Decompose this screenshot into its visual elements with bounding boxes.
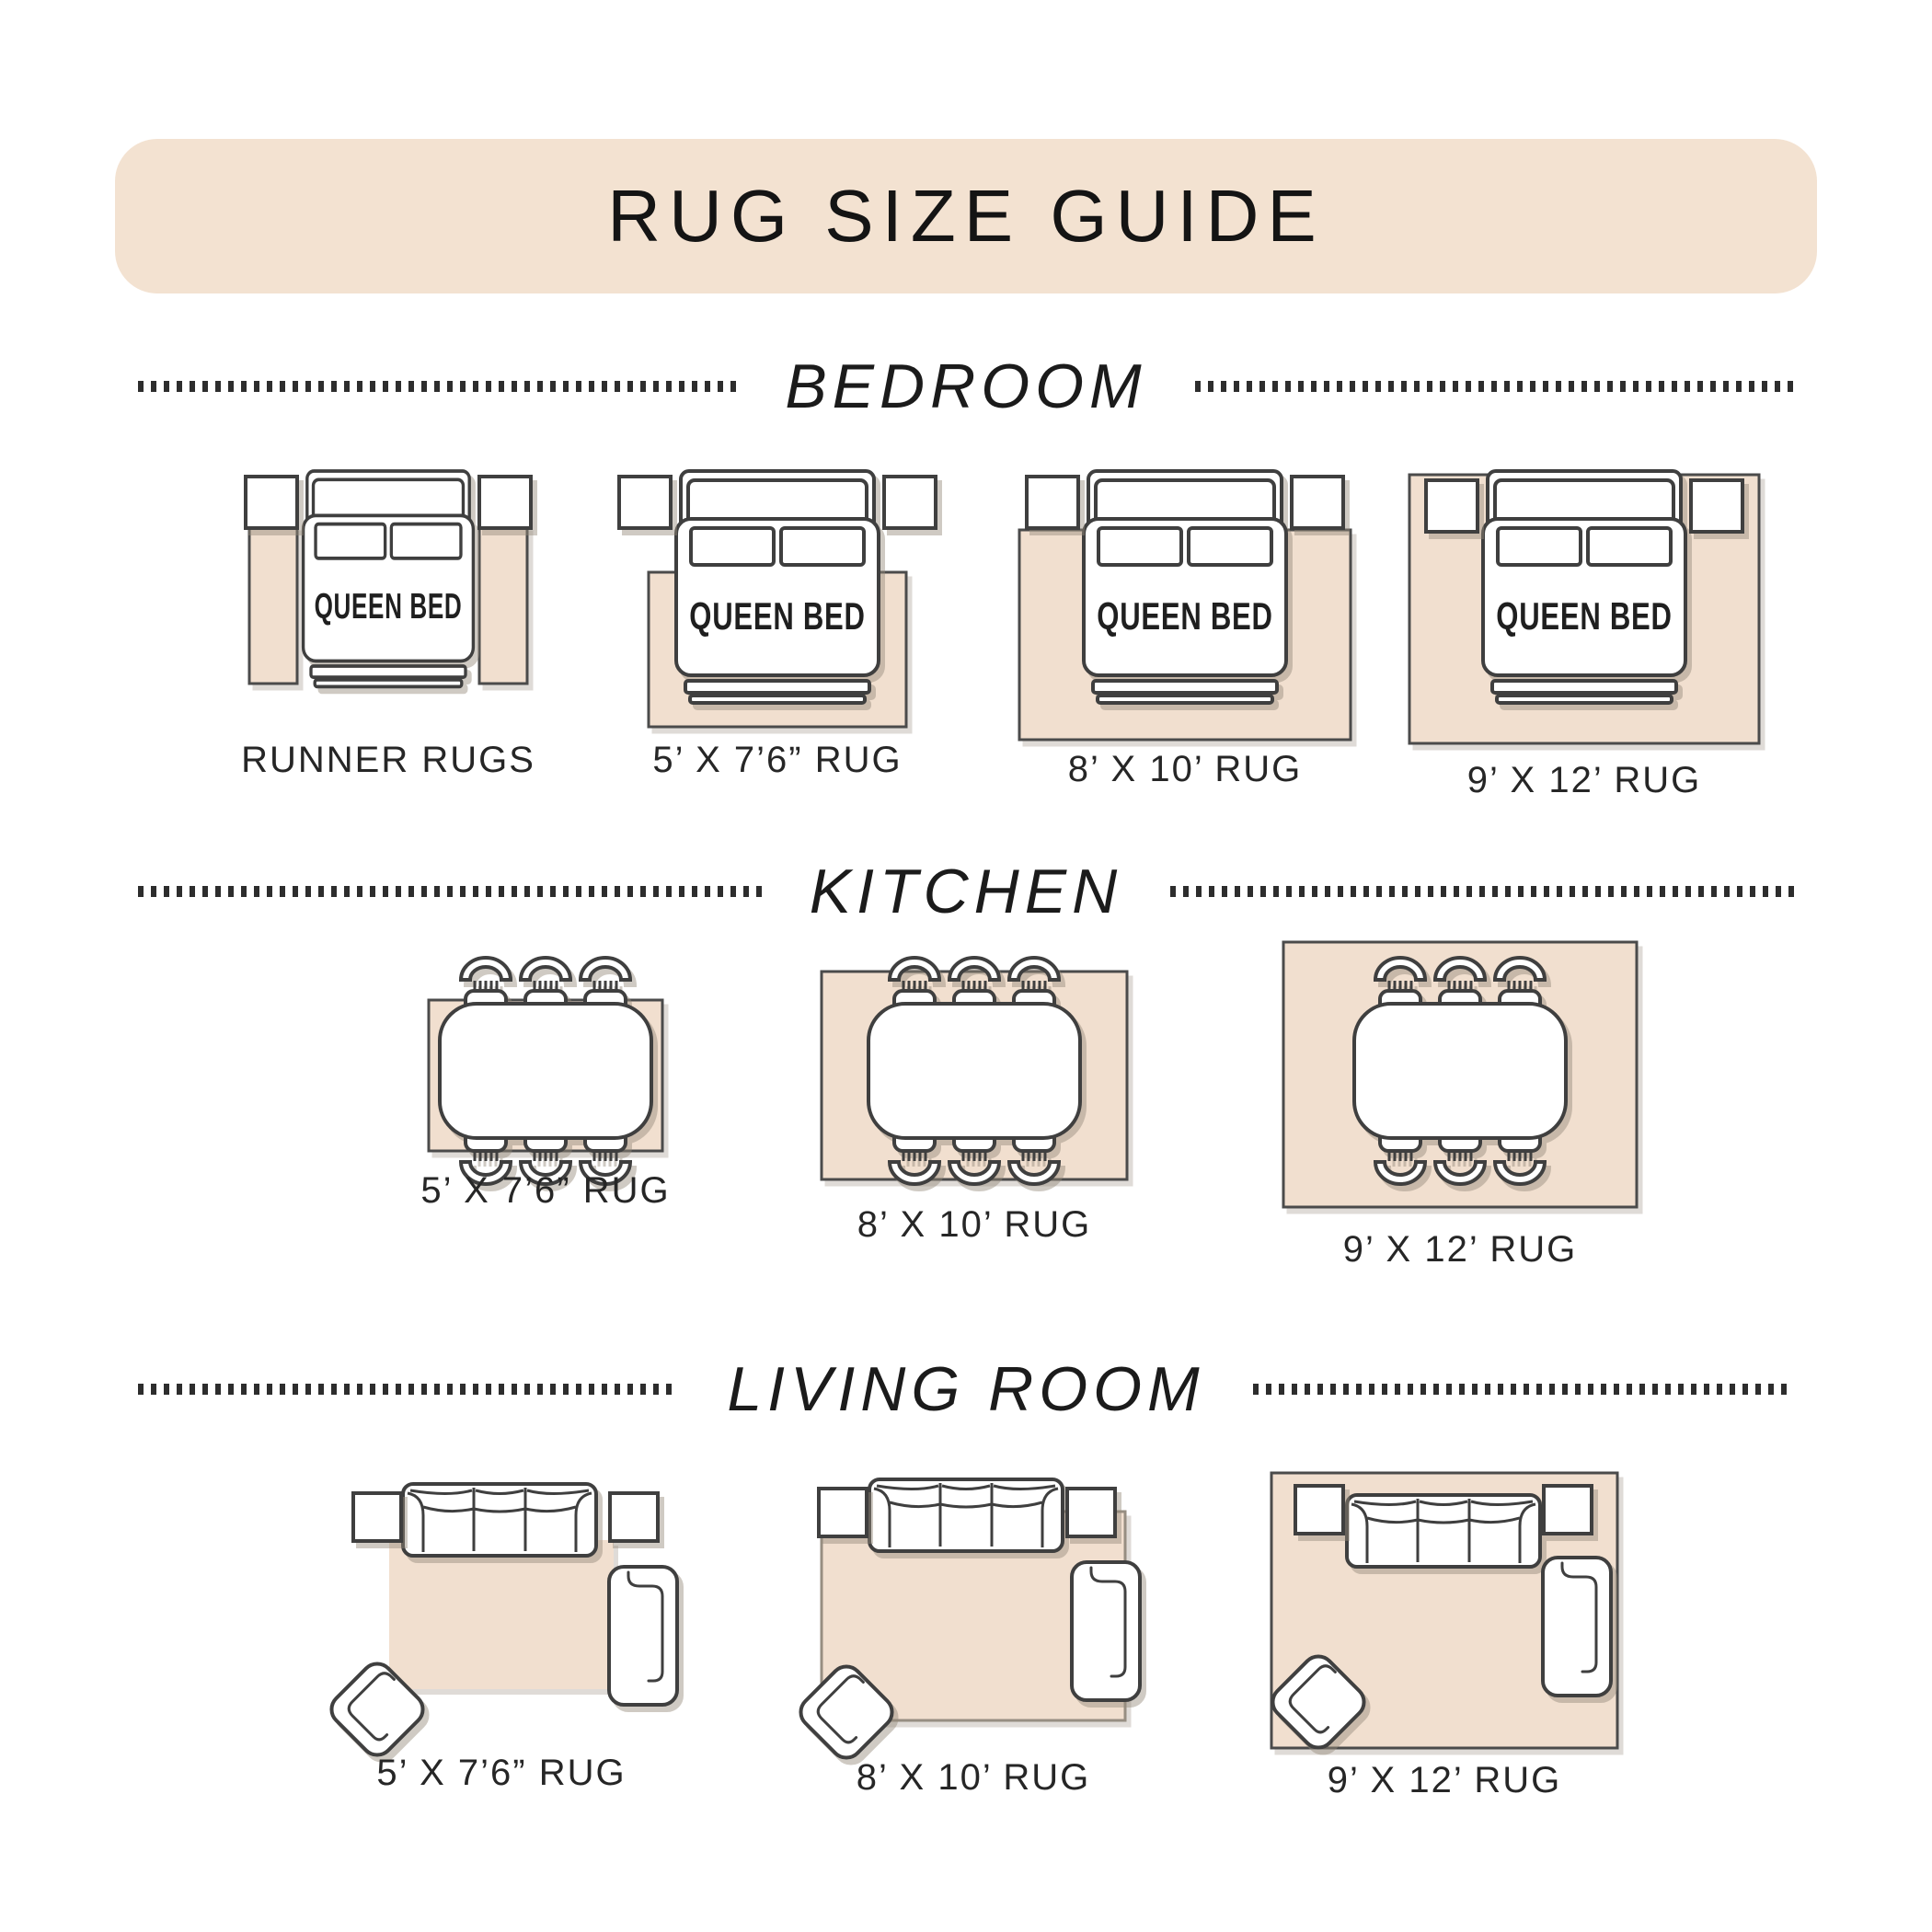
nightstand — [1426, 480, 1478, 532]
rug-size-label: 9’ X 12’ RUG — [1467, 760, 1701, 800]
dotted-line — [138, 381, 737, 392]
title-banner: RUG SIZE GUIDE — [115, 139, 1817, 293]
bed — [1483, 471, 1685, 703]
chaise — [1072, 1562, 1140, 1700]
bedroom-8x10-rug-diagram: 8’ X 10’ RUG — [983, 464, 1387, 804]
rug-size-label: 8’ X 10’ RUG — [857, 1204, 1091, 1245]
bed — [304, 471, 474, 686]
kitchen-9x12-rug-diagram: 9’ X 12’ RUG — [1258, 933, 1662, 1282]
bedroom-section-header: BEDROOM — [138, 351, 1794, 422]
living-room-section-header: LIVING ROOM — [138, 1353, 1794, 1425]
kitchen-section-header: KITCHEN — [138, 856, 1794, 927]
kitchen-section-title: KITCHEN — [762, 856, 1170, 927]
dotted-line — [138, 1384, 679, 1395]
sofa — [1347, 1495, 1540, 1567]
side-table — [353, 1493, 401, 1541]
living-room-diagrams-row: 5’ X 7’6” RUG 8’ X 10’ RUG 9’ X 12’ RUG — [0, 1463, 1932, 1812]
chaise — [1543, 1558, 1611, 1696]
rug-size-label: RUNNER RUGS — [241, 740, 535, 780]
side-table — [1067, 1489, 1115, 1536]
dining-set — [1354, 958, 1566, 1184]
dotted-line — [138, 886, 762, 897]
bedroom-runner-rugs-diagram: RUNNER RUGS — [186, 464, 591, 804]
rug-size-guide-infographic: RUG SIZE GUIDE BEDROOM RUNNER RUGS 5’ X … — [0, 139, 1932, 1812]
bed — [1084, 471, 1286, 703]
rug-size-label: 9’ X 12’ RUG — [1343, 1229, 1577, 1270]
rug — [389, 1540, 614, 1689]
rug-size-label: 5’ X 7’6” RUG — [652, 740, 902, 780]
living-room-5x76-rug-diagram: 5’ X 7’6” RUG — [297, 1463, 730, 1812]
kitchen-8x10-rug-diagram: 8’ X 10’ RUG — [772, 933, 1177, 1282]
dotted-line — [1253, 1384, 1794, 1395]
rug-size-label: 5’ X 7’6” RUG — [420, 1170, 670, 1211]
kitchen-5x76-rug-diagram: 5’ X 7’6” RUG — [343, 933, 748, 1282]
rug-size-label: 5’ X 7’6” RUG — [376, 1753, 626, 1793]
rug-size-label: 9’ X 12’ RUG — [1328, 1760, 1561, 1800]
sofa — [403, 1484, 596, 1556]
dotted-line — [1170, 886, 1794, 897]
nightstand — [246, 477, 297, 528]
side-table — [610, 1493, 658, 1541]
rug-size-label: 8’ X 10’ RUG — [1068, 749, 1302, 789]
kitchen-diagrams-row: 5’ X 7’6” RUG 8’ X 10’ RUG 9’ X 12’ RUG — [0, 933, 1932, 1282]
living-room-section-title: LIVING ROOM — [679, 1353, 1252, 1425]
side-table — [819, 1489, 867, 1536]
bedroom-5x76-rug-diagram: 5’ X 7’6” RUG — [575, 464, 980, 804]
nightstand — [884, 477, 936, 528]
nightstand — [1027, 477, 1078, 528]
nightstand — [619, 477, 671, 528]
page-title: RUG SIZE GUIDE — [607, 174, 1324, 259]
nightstand — [1691, 480, 1742, 532]
sofa — [869, 1479, 1063, 1551]
side-table — [1544, 1486, 1592, 1534]
dining-set — [868, 958, 1080, 1184]
dotted-line — [1195, 381, 1794, 392]
nightstand — [1292, 477, 1343, 528]
nightstand — [479, 477, 531, 528]
chaise — [609, 1567, 677, 1705]
bedroom-section-title: BEDROOM — [737, 351, 1194, 422]
rug-size-label: 8’ X 10’ RUG — [857, 1757, 1090, 1798]
bed — [676, 471, 879, 703]
dining-set — [440, 958, 651, 1184]
bedroom-diagrams-row: RUNNER RUGS 5’ X 7’6” RUG 8’ X 10’ RUG 9… — [0, 464, 1932, 804]
bedroom-9x12-rug-diagram: 9’ X 12’ RUG — [1382, 464, 1787, 804]
side-table — [1295, 1486, 1343, 1534]
living-room-9x12-rug-diagram: 9’ X 12’ RUG — [1228, 1463, 1661, 1812]
living-room-8x10-rug-diagram: 8’ X 10’ RUG — [764, 1463, 1196, 1812]
